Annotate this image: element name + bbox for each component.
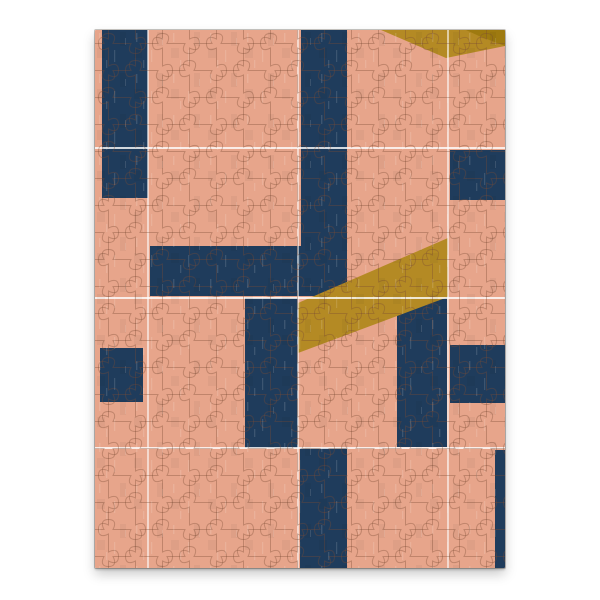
- puzzle-paper-texture: [95, 30, 505, 568]
- photo-backdrop: [0, 0, 600, 600]
- puzzle-artwork: [95, 30, 505, 568]
- jigsaw-puzzle: [95, 30, 505, 568]
